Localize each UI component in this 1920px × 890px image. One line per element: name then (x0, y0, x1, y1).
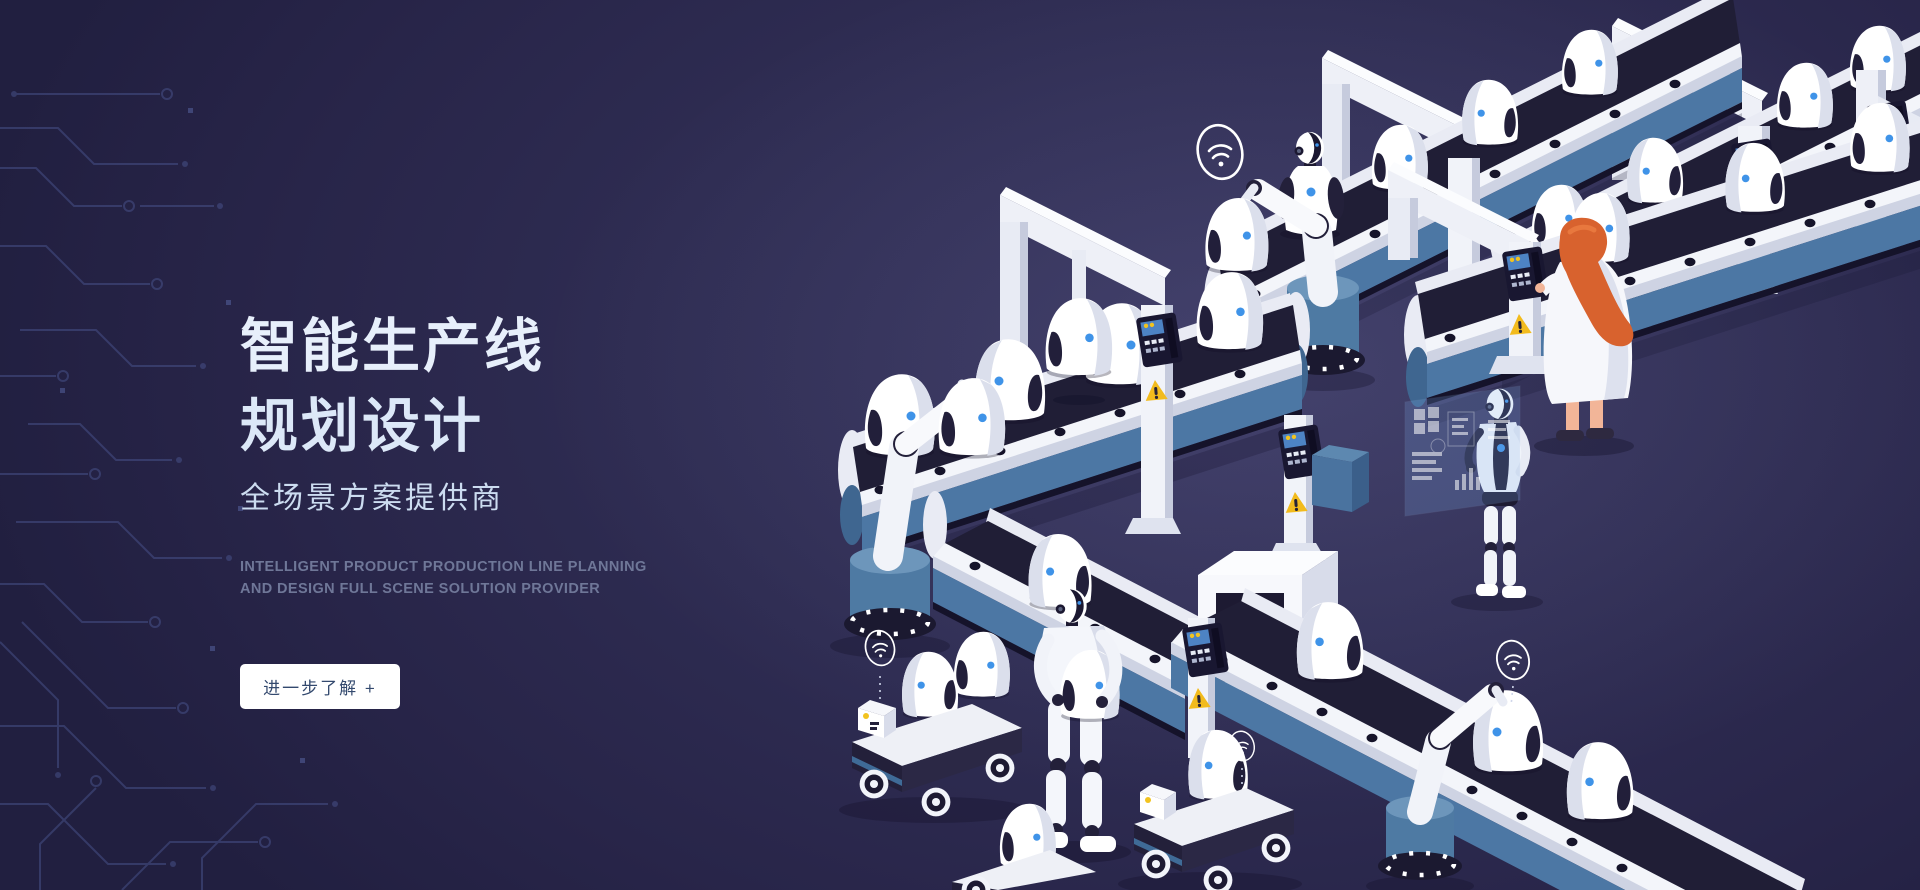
hero-copy: 智能生产线 规划设计 全场景方案提供商 INTELLIGENT PRODUCT … (240, 314, 647, 709)
heading-line-2: 规划设计 (240, 394, 647, 460)
control-panel (1182, 622, 1229, 678)
crate (1312, 445, 1369, 512)
control-panel (1502, 246, 1549, 302)
tagline-line-2: AND DESIGN FULL SCENE SOLUTION PROVIDER (240, 578, 647, 600)
control-panel (1136, 312, 1183, 368)
hero-banner: 智能生产线 规划设计 全场景方案提供商 INTELLIGENT PRODUCT … (0, 0, 1920, 890)
tagline: INTELLIGENT PRODUCT PRODUCTION LINE PLAN… (240, 556, 647, 600)
subtitle: 全场景方案提供商 (240, 482, 647, 516)
hologram-panel (1405, 386, 1520, 516)
tagline-line-1: INTELLIGENT PRODUCT PRODUCTION LINE PLAN… (240, 556, 647, 578)
heading-line-1: 智能生产线 (240, 314, 647, 380)
learn-more-button[interactable]: 进一步了解 + (240, 664, 400, 709)
